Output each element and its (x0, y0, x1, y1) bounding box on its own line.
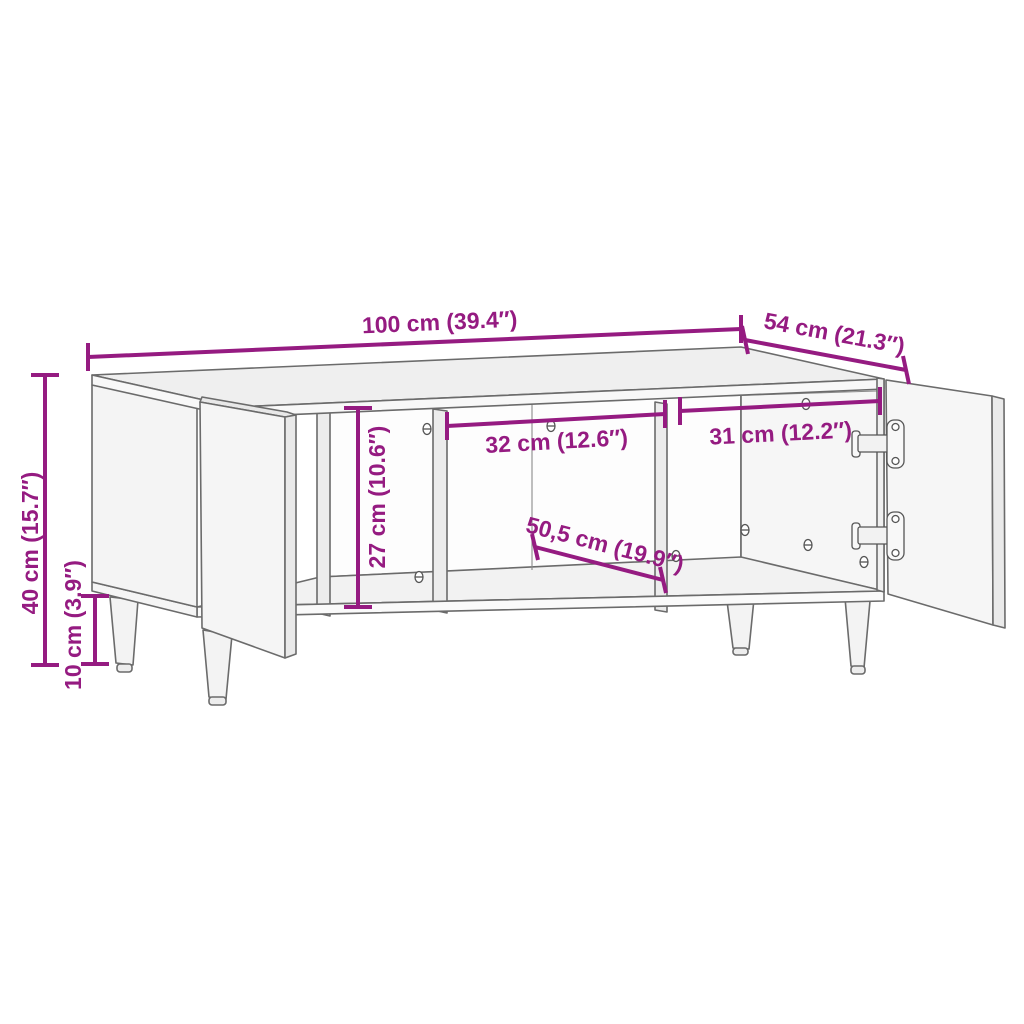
leg-front-left (203, 630, 232, 705)
dimension-height: 40 cm (15.7″) (17, 375, 59, 665)
dimension-diagram: 100 cm (39.4″) 54 cm (21.3″) 40 cm (15.7… (0, 0, 1024, 1024)
dimension-leg-height-label: 10 cm (3.9″) (60, 560, 86, 690)
dimension-width-label: 100 cm (39.4″) (361, 306, 517, 339)
dimension-height-label: 40 cm (15.7″) (17, 472, 43, 615)
right-door-side-edge (992, 396, 1005, 628)
dimension-depth-label: 54 cm (21.3″) (762, 307, 907, 359)
partition-left-front-edge (317, 406, 330, 616)
left-door (200, 397, 296, 658)
diagram-canvas: 100 cm (39.4″) 54 cm (21.3″) 40 cm (15.7… (0, 0, 1024, 1024)
right-door-face (886, 380, 993, 625)
left-door-face (200, 402, 285, 658)
partition-mid-front-edge (433, 409, 447, 613)
leg-back-left (110, 597, 138, 672)
leg-back-right (727, 599, 754, 655)
leg-front-right (845, 598, 870, 674)
left-side-panel (92, 385, 197, 607)
dimension-inner-height-label: 27 cm (10.6″) (364, 426, 390, 569)
left-door-side-edge (285, 415, 296, 658)
